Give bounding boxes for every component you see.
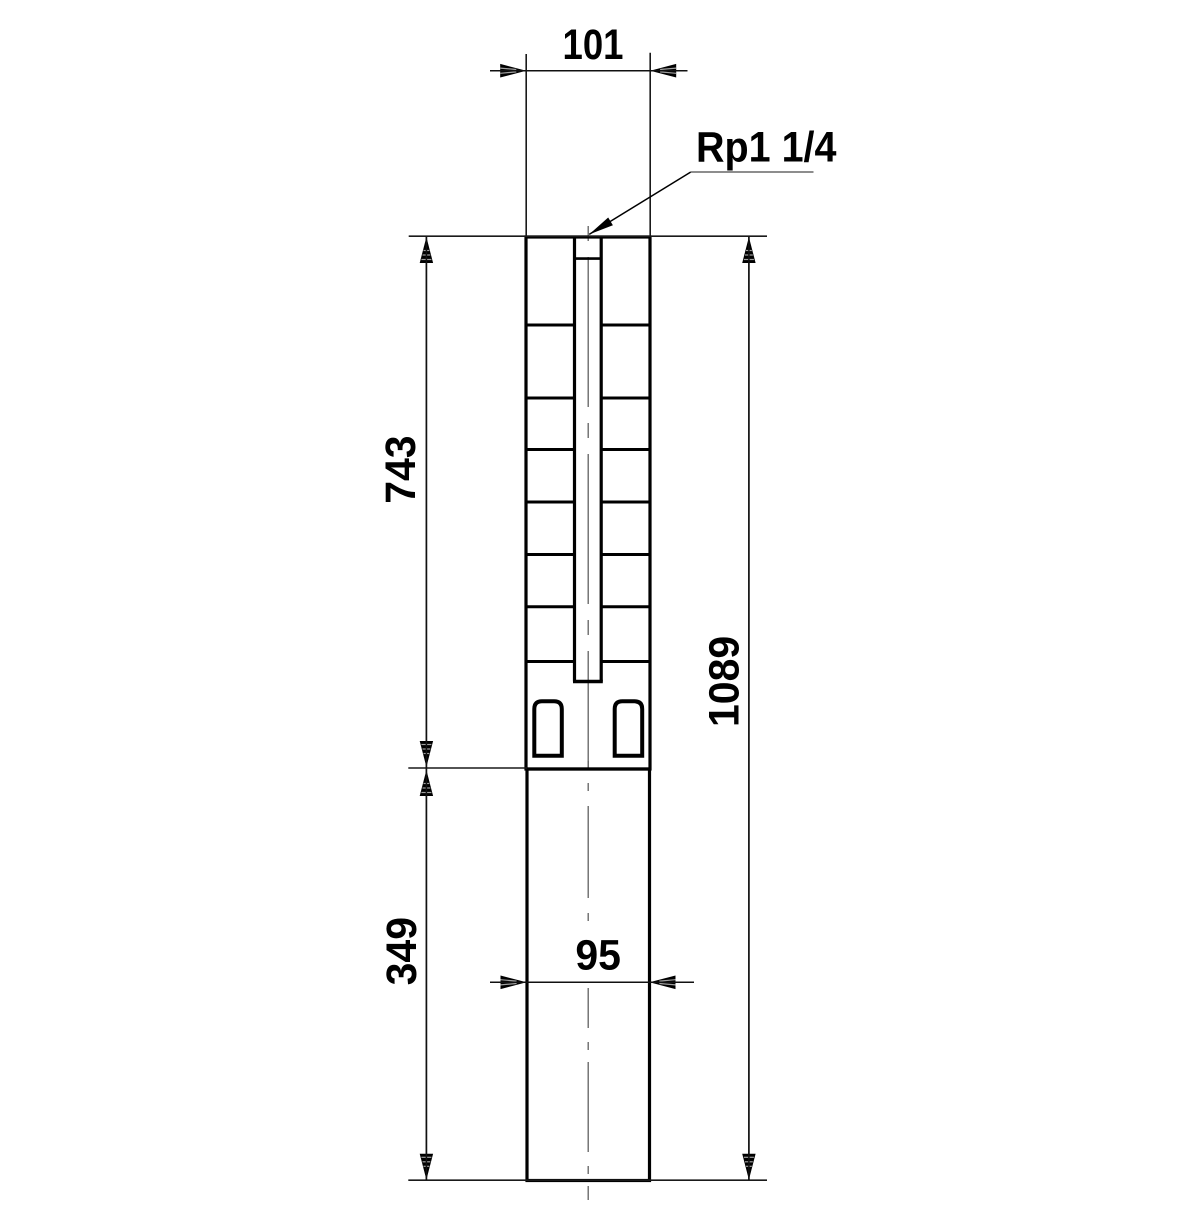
svg-text:1089: 1089 xyxy=(701,636,749,727)
svg-text:Rp1 1/4: Rp1 1/4 xyxy=(696,124,837,171)
svg-text:743: 743 xyxy=(377,435,425,503)
svg-text:349: 349 xyxy=(378,917,426,985)
svg-text:101: 101 xyxy=(563,22,624,69)
svg-text:95: 95 xyxy=(575,933,621,980)
